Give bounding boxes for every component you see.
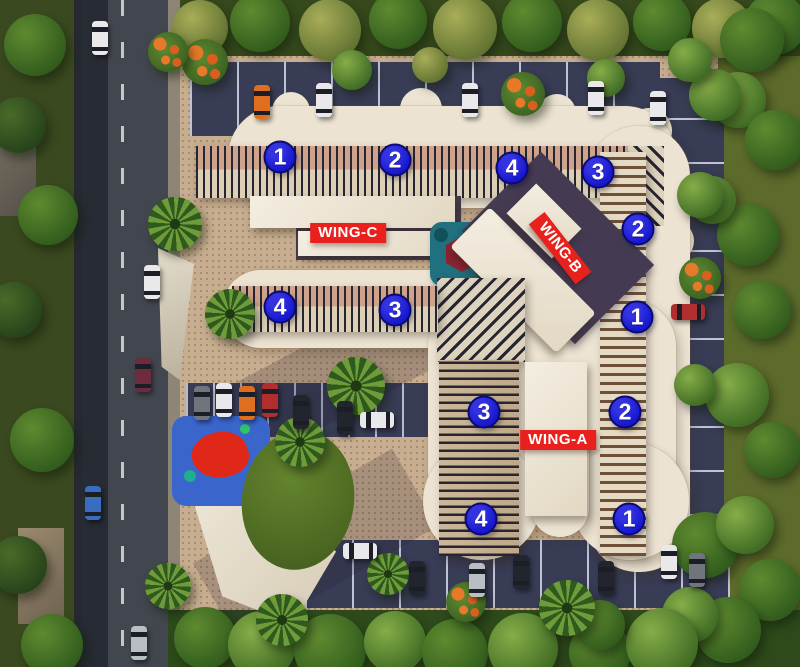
wing-a-label[interactable]: WING-A [520,430,596,450]
site-plan-canvas: 124321433241WING-CWING-BWING-A [0,0,800,667]
wing-c-label[interactable]: WING-C [310,223,386,243]
unit-marker-2[interactable]: 2 [379,144,412,177]
unit-marker-3[interactable]: 3 [582,156,615,189]
unit-marker-1[interactable]: 1 [264,141,297,174]
annotation-layer: 124321433241WING-CWING-BWING-A [0,0,800,667]
unit-marker-1[interactable]: 1 [613,503,646,536]
unit-marker-3[interactable]: 3 [379,294,412,327]
unit-marker-2[interactable]: 2 [609,396,642,429]
unit-marker-4[interactable]: 4 [465,503,498,536]
unit-marker-3[interactable]: 3 [468,396,501,429]
unit-marker-4[interactable]: 4 [496,152,529,185]
unit-marker-2[interactable]: 2 [622,213,655,246]
unit-marker-4[interactable]: 4 [264,291,297,324]
wing-b-label[interactable]: WING-B [529,212,591,284]
unit-marker-1[interactable]: 1 [621,301,654,334]
